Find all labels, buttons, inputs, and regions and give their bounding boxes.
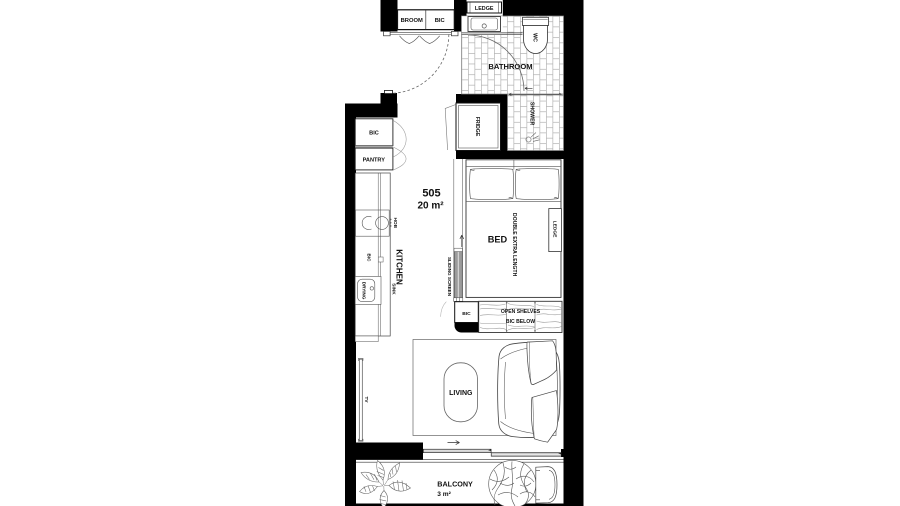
svg-text:BALCONY: BALCONY [437, 479, 473, 488]
svg-text:FRIDGE: FRIDGE [474, 117, 480, 137]
svg-text:KITCHEN: KITCHEN [394, 249, 403, 285]
svg-text:OPEN SHELVES: OPEN SHELVES [501, 309, 541, 315]
svg-text:SLIDING SCREEN: SLIDING SCREEN [447, 257, 452, 297]
svg-text:LIVING: LIVING [449, 390, 473, 397]
svg-text:WC: WC [532, 33, 538, 42]
svg-text:HOB: HOB [392, 217, 398, 228]
svg-text:BIC BELOW: BIC BELOW [506, 319, 535, 325]
svg-text:BIC: BIC [462, 311, 471, 317]
svg-text:BIC: BIC [367, 254, 372, 263]
svg-text:LEDGE: LEDGE [552, 221, 558, 239]
svg-text:BIC: BIC [435, 18, 446, 24]
svg-text:DRYING: DRYING [362, 282, 367, 300]
svg-text:BED: BED [488, 235, 508, 245]
svg-text:BATHROOM: BATHROOM [488, 62, 532, 71]
svg-text:505: 505 [422, 188, 440, 200]
svg-text:20 m²: 20 m² [417, 201, 444, 212]
svg-text:SHOWER: SHOWER [528, 102, 534, 126]
svg-text:SINK: SINK [391, 283, 397, 295]
svg-text:DOUBLE EXTRA LENGTH: DOUBLE EXTRA LENGTH [511, 213, 517, 277]
svg-text:BROOM: BROOM [401, 18, 423, 24]
svg-text:3 m²: 3 m² [437, 491, 451, 498]
svg-text:LEDGE: LEDGE [475, 6, 494, 12]
svg-text:TV: TV [364, 397, 369, 404]
svg-text:PANTRY: PANTRY [363, 158, 386, 164]
svg-text:BIC: BIC [369, 130, 379, 136]
